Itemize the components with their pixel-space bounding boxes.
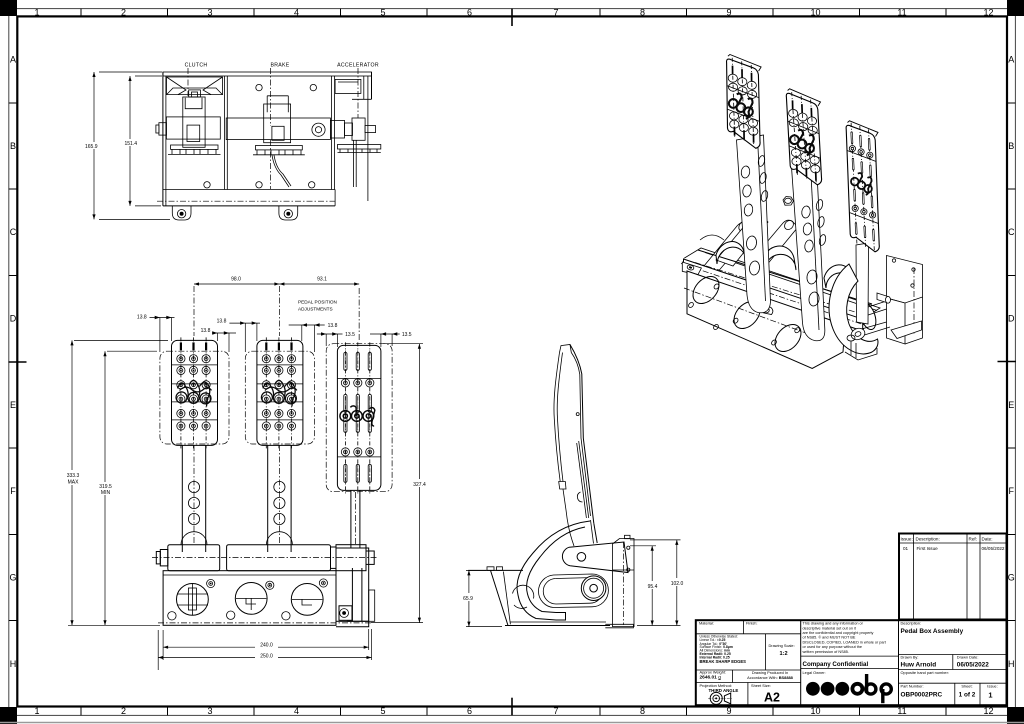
svg-text:9: 9 — [726, 706, 731, 716]
svg-text:93.1: 93.1 — [317, 277, 327, 283]
svg-text:Approx Weight:: Approx Weight: — [700, 670, 727, 675]
svg-text:06/05/2022: 06/05/2022 — [982, 546, 1005, 551]
svg-text:E: E — [10, 400, 16, 410]
svg-text:Description:: Description: — [916, 537, 940, 542]
svg-text:Issue:: Issue: — [987, 684, 997, 689]
svg-text:B: B — [1008, 141, 1014, 151]
svg-text:5: 5 — [380, 8, 385, 18]
svg-text:Sheet:: Sheet: — [961, 684, 972, 689]
svg-text:250.0: 250.0 — [260, 654, 273, 660]
svg-text:Legal Owner:: Legal Owner: — [803, 670, 826, 675]
svg-text:151.4: 151.4 — [125, 141, 138, 147]
svg-text:Drawn By:: Drawn By: — [901, 655, 919, 660]
svg-text:327.4: 327.4 — [413, 482, 426, 488]
svg-text:Opposite hand part number:: Opposite hand part number: — [901, 670, 949, 675]
svg-text:of NS85. © and MUST NOT BE: of NS85. © and MUST NOT BE — [803, 636, 856, 640]
svg-text:4: 4 — [294, 8, 299, 18]
svg-text:or used for any purpose withou: or used for any purpose without the — [803, 645, 863, 649]
svg-text:B: B — [10, 141, 16, 151]
svg-text:OBP0002PRC: OBP0002PRC — [901, 692, 943, 699]
svg-text:2646.01 g: 2646.01 g — [700, 675, 722, 681]
svg-text:2: 2 — [121, 706, 126, 716]
svg-text:D: D — [1008, 314, 1015, 324]
svg-text:This drawing and any informati: This drawing and any information or — [803, 622, 864, 626]
svg-text:3: 3 — [207, 706, 212, 716]
svg-text:6: 6 — [467, 706, 472, 716]
svg-text:4: 4 — [294, 706, 299, 716]
svg-text:102.0: 102.0 — [671, 581, 684, 587]
svg-text:65.9: 65.9 — [463, 596, 473, 602]
svg-text:C: C — [1008, 227, 1015, 237]
svg-text:Date:: Date: — [982, 537, 993, 542]
svg-text:C: C — [10, 227, 17, 237]
svg-text:Ref:: Ref: — [969, 537, 977, 542]
svg-text:1: 1 — [34, 8, 39, 18]
svg-text:10: 10 — [810, 8, 820, 18]
svg-text:10: 10 — [810, 706, 820, 716]
svg-text:Part Number:: Part Number: — [901, 684, 924, 689]
svg-text:Drawn Date:: Drawn Date: — [957, 655, 979, 660]
svg-text:DISCLOSED, COPIED, LOANED in w: DISCLOSED, COPIED, LOANED in whole or pa… — [803, 640, 887, 644]
svg-text:1:2: 1:2 — [780, 651, 788, 657]
svg-text:Finish:: Finish: — [746, 621, 757, 626]
svg-text:F: F — [1009, 486, 1015, 496]
svg-text:BREAK SHARP EDGES: BREAK SHARP EDGES — [700, 659, 747, 664]
svg-text:95.4: 95.4 — [648, 584, 658, 590]
svg-text:Pedal Box Assembly: Pedal Box Assembly — [901, 628, 964, 635]
svg-text:ADJUSTMENTS: ADJUSTMENTS — [298, 307, 333, 312]
svg-text:Accordance With: BS8888: Accordance With: BS8888 — [747, 675, 793, 680]
svg-text:1: 1 — [34, 706, 39, 716]
svg-text:A: A — [10, 55, 16, 65]
svg-text:12: 12 — [983, 706, 993, 716]
svg-text:Material:: Material: — [699, 621, 714, 626]
svg-text:7: 7 — [553, 8, 558, 18]
svg-text:5: 5 — [380, 706, 385, 716]
svg-text:165.9: 165.9 — [85, 144, 98, 150]
svg-text:Huw Arnold: Huw Arnold — [901, 662, 937, 669]
svg-text:11: 11 — [897, 8, 906, 18]
svg-text:9: 9 — [726, 8, 731, 18]
svg-text:240.0: 240.0 — [260, 643, 273, 649]
svg-text:13.5: 13.5 — [345, 332, 355, 338]
svg-text:descriptive material set out o: descriptive material set out on it — [803, 626, 857, 630]
svg-text:13.8: 13.8 — [201, 328, 211, 334]
svg-text:E: E — [1008, 400, 1014, 410]
svg-text:3: 3 — [207, 8, 212, 18]
svg-text:CLUTCH: CLUTCH — [185, 63, 208, 69]
svg-text:F: F — [10, 486, 16, 496]
svg-text:BRAKE: BRAKE — [270, 63, 289, 69]
svg-text:ACCELERATOR: ACCELERATOR — [337, 63, 379, 69]
svg-text:8: 8 — [640, 706, 645, 716]
svg-text:written permission of NS85.: written permission of NS85. — [803, 650, 849, 654]
svg-text:13.8: 13.8 — [137, 315, 147, 321]
svg-text:MIN: MIN — [101, 490, 111, 496]
svg-text:First Issue: First Issue — [917, 546, 939, 551]
svg-text:13.8: 13.8 — [217, 318, 227, 324]
svg-text:A2: A2 — [764, 691, 780, 705]
svg-text:Projection Method:: Projection Method: — [700, 683, 732, 688]
svg-text:Drawing Scale:: Drawing Scale: — [769, 643, 795, 648]
svg-text:13.8: 13.8 — [328, 323, 338, 329]
svg-text:G: G — [1008, 573, 1015, 583]
svg-text:G: G — [9, 573, 16, 583]
svg-text:13.5: 13.5 — [402, 332, 412, 338]
svg-text:11: 11 — [897, 706, 906, 716]
svg-text:6: 6 — [467, 8, 472, 18]
svg-text:MAX: MAX — [68, 480, 80, 486]
svg-text:Company Confidential: Company Confidential — [803, 661, 869, 668]
svg-text:H: H — [1008, 659, 1015, 669]
svg-text:8: 8 — [640, 8, 645, 18]
svg-text:Description:: Description: — [901, 621, 922, 626]
svg-text:PEDAL POSITION: PEDAL POSITION — [298, 300, 337, 305]
svg-text:A: A — [1008, 55, 1014, 65]
svg-text:7: 7 — [553, 706, 558, 716]
svg-text:Sheet Size:: Sheet Size: — [751, 683, 771, 688]
svg-text:06/05/2022: 06/05/2022 — [957, 662, 989, 669]
svg-text:THIRD ANGLE: THIRD ANGLE — [709, 688, 739, 693]
svg-text:Issue:: Issue: — [901, 537, 913, 542]
svg-text:1: 1 — [988, 691, 992, 700]
svg-text:D: D — [10, 314, 17, 324]
svg-text:12: 12 — [983, 8, 993, 18]
svg-text:H: H — [10, 659, 17, 669]
svg-text:333.3: 333.3 — [67, 473, 80, 479]
svg-text:2: 2 — [121, 8, 126, 18]
svg-text:1 of 2: 1 of 2 — [959, 692, 976, 699]
svg-text:01: 01 — [903, 546, 909, 551]
svg-text:are the confidential and copyr: are the confidential and copyright prope… — [803, 631, 874, 635]
svg-text:98.0: 98.0 — [231, 277, 241, 283]
